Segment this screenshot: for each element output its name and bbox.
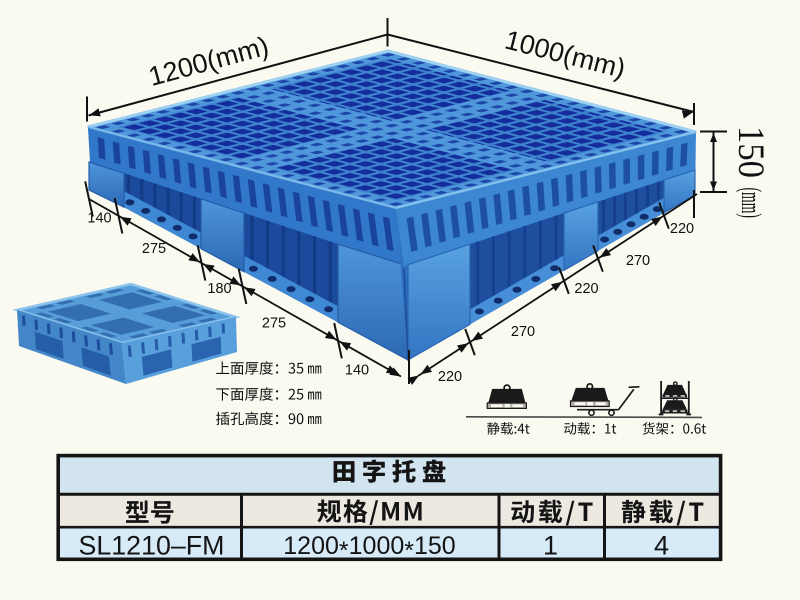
svg-text:1: 1 bbox=[543, 531, 558, 561]
svg-text:270: 270 bbox=[626, 253, 650, 269]
svg-text:180: 180 bbox=[207, 281, 231, 297]
svg-text:140: 140 bbox=[345, 363, 369, 379]
svg-text:220: 220 bbox=[438, 369, 462, 385]
svg-text:220: 220 bbox=[574, 281, 598, 297]
svg-text:140: 140 bbox=[87, 211, 111, 227]
svg-text:275: 275 bbox=[142, 241, 166, 257]
svg-text:150: 150 bbox=[730, 126, 771, 178]
svg-text:SL1210–FM: SL1210–FM bbox=[79, 531, 225, 561]
svg-text:275: 275 bbox=[262, 316, 286, 332]
svg-text:270: 270 bbox=[511, 324, 535, 340]
svg-text:220: 220 bbox=[670, 221, 694, 237]
svg-text:(mm): (mm) bbox=[735, 184, 766, 218]
svg-text:4: 4 bbox=[654, 531, 669, 561]
